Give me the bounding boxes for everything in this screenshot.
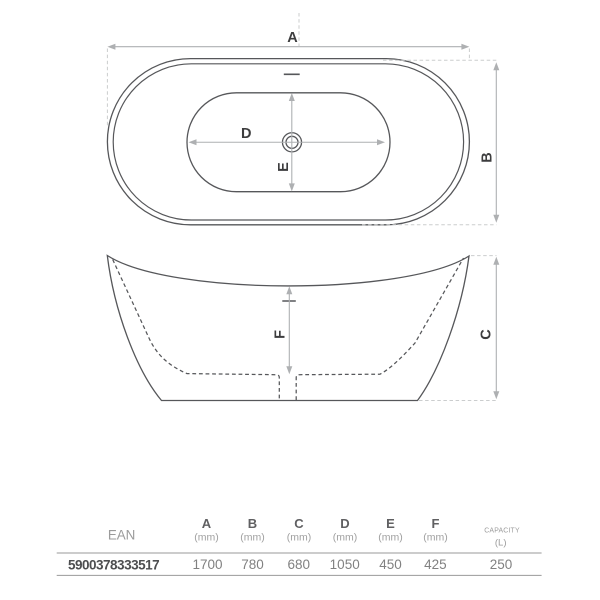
svg-text:680: 680 [288, 557, 311, 572]
svg-text:C: C [479, 329, 495, 340]
svg-text:F: F [273, 330, 289, 339]
svg-text:(mm): (mm) [194, 532, 219, 544]
svg-text:F: F [432, 516, 440, 531]
svg-text:B: B [248, 516, 257, 531]
svg-text:5900378333517: 5900378333517 [68, 558, 159, 573]
svg-text:(mm): (mm) [378, 532, 403, 544]
svg-text:CAPACITY: CAPACITY [484, 528, 520, 535]
svg-text:(mm): (mm) [287, 532, 312, 544]
svg-text:250: 250 [490, 557, 513, 572]
svg-text:C: C [294, 516, 304, 531]
svg-text:(mm): (mm) [423, 532, 448, 544]
svg-text:450: 450 [379, 557, 402, 572]
svg-text:B: B [480, 152, 496, 162]
svg-text:(mm): (mm) [333, 532, 358, 544]
svg-text:D: D [340, 516, 349, 531]
svg-text:A: A [202, 516, 212, 531]
svg-text:425: 425 [424, 557, 447, 572]
svg-text:1700: 1700 [192, 557, 222, 572]
svg-text:E: E [386, 516, 395, 531]
svg-text:(mm): (mm) [240, 532, 265, 544]
svg-text:A: A [287, 30, 298, 46]
svg-text:780: 780 [241, 557, 264, 572]
svg-text:(L): (L) [495, 538, 507, 549]
svg-text:D: D [241, 126, 251, 142]
svg-text:1050: 1050 [330, 557, 360, 572]
svg-text:EAN: EAN [108, 527, 136, 542]
svg-text:E: E [276, 162, 292, 172]
